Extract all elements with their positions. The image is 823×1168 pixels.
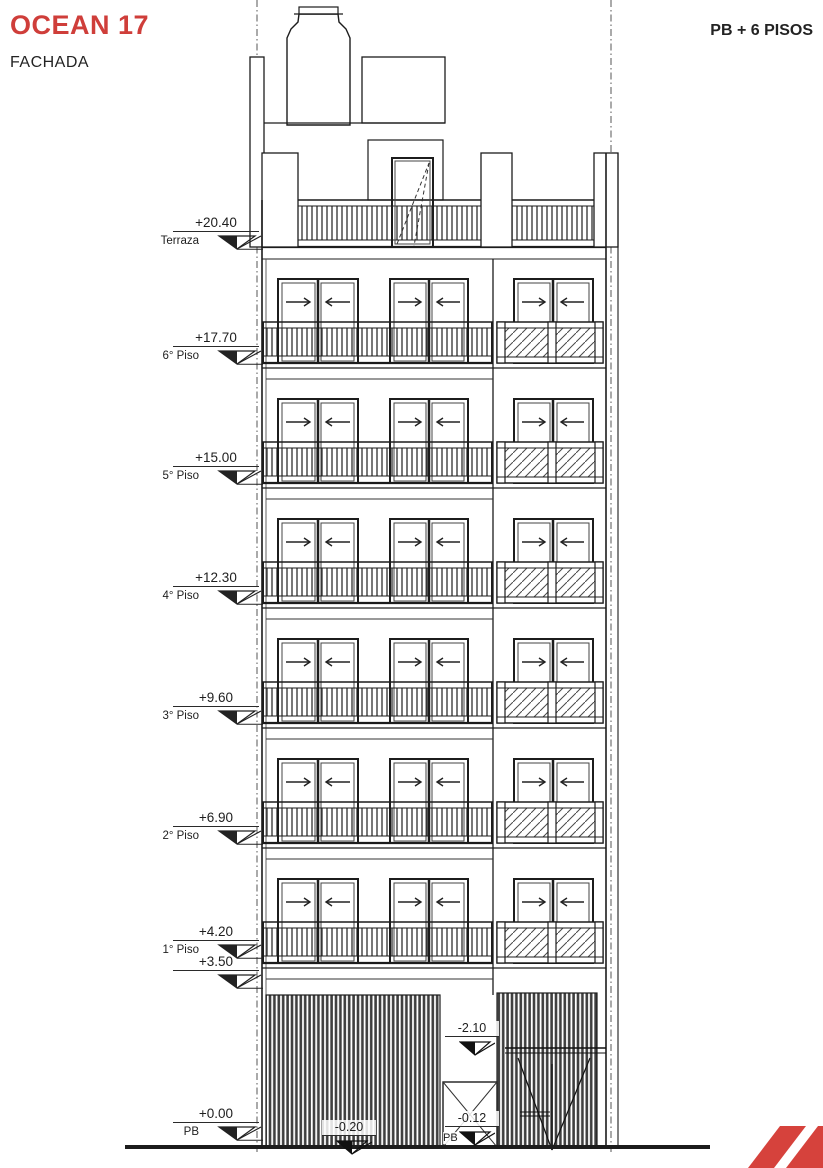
floor-row-6 [262,279,606,379]
level-value: +4.20 [173,924,259,941]
floor-row-4 [262,519,606,619]
floor-row-2 [262,759,606,859]
ground-slat-screen-right [497,993,597,1147]
level-value: +6.90 [173,810,259,827]
level-datum-icon [217,974,263,990]
level-marker-3-piso: 3° Piso +9.60 [163,690,273,728]
level-datum-icon [217,1126,263,1142]
terrace-post [481,153,512,247]
facade-drawing [0,0,823,1168]
level-marker-pb: PB +0.00 [163,1106,273,1144]
floor-row-5 [262,399,606,499]
level-label: 6° Piso [162,350,199,362]
level-value: +15.00 [173,450,259,467]
level-datum-icon [217,470,263,486]
level-value: +17.70 [173,330,259,347]
level-datum-icon [217,710,263,726]
stair-bulkhead-lower [368,140,443,200]
level-marker-6-piso: 6° Piso +17.70 [163,330,273,368]
floor-row-1 [262,879,606,979]
level-value: -0.12 [445,1111,499,1127]
level-value: +12.30 [173,570,259,587]
level-datum-icon [217,235,263,251]
level-label: PB [443,1132,458,1144]
level-datum-icon [217,350,263,366]
facade-sheet: OCEAN 17 FACHADA PB + 6 PISOS [0,0,823,1168]
level-value: -2.10 [445,1021,499,1037]
floor-row-3 [262,639,606,739]
level-label: 2° Piso [162,830,199,842]
level-marker-terraza: Terraza +20.40 [163,215,273,253]
level-value: +9.60 [173,690,259,707]
level-datum-icon [217,830,263,846]
brand-logo-icon [733,1118,823,1168]
level-marker-basement: -2.10 [437,1021,509,1059]
level-marker-350: +3.50 [163,954,273,992]
level-value: -0.20 [322,1120,376,1136]
level-datum-icon [336,1140,372,1156]
level-marker-5-piso: 5° Piso +15.00 [163,450,273,488]
level-marker-2-piso: 2° Piso +6.90 [163,810,273,848]
water-tank [287,7,350,125]
level-marker-minus020: -0.20 [314,1120,386,1158]
level-value: +3.50 [173,954,259,971]
level-label: 3° Piso [162,710,199,722]
level-marker-pb-interior: PB -0.12 [437,1111,509,1149]
level-marker-4-piso: 4° Piso +12.30 [163,570,273,608]
level-datum-icon [459,1041,495,1057]
level-label: PB [184,1126,199,1138]
level-label: 5° Piso [162,470,199,482]
level-label: 4° Piso [162,590,199,602]
level-value: +0.00 [173,1106,259,1123]
level-datum-icon [217,590,263,606]
stair-bulkhead-upper [362,57,445,123]
level-datum-icon [459,1131,495,1147]
level-label: Terraza [161,235,199,247]
level-value: +20.40 [173,215,259,232]
